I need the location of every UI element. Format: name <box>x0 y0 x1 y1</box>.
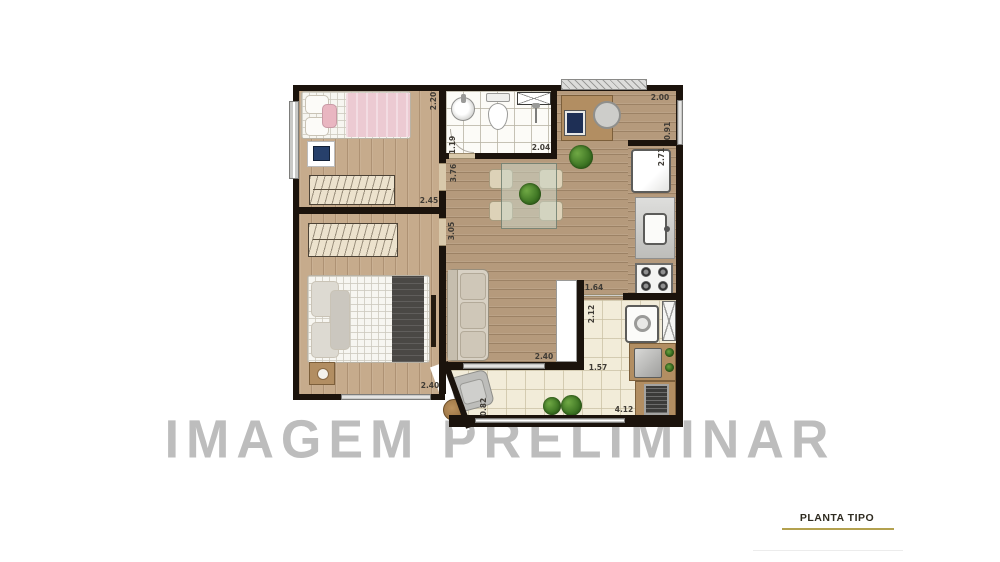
barbecue-grill <box>644 384 669 415</box>
bedroom2-door <box>439 218 446 246</box>
office-side-window <box>677 100 683 145</box>
burner <box>641 267 651 277</box>
grill-counter <box>635 381 676 417</box>
sofa-backrest <box>448 270 458 360</box>
bedroom1-bed <box>301 91 411 139</box>
bush <box>561 395 582 416</box>
office-window <box>561 79 647 90</box>
kitchen-counter <box>635 197 675 259</box>
shower-pipe <box>535 107 537 123</box>
bedroom2-bed <box>307 275 430 363</box>
service-cabinet <box>662 301 676 341</box>
page-canvas: IMAGEM PRELIMINAR <box>0 0 1000 562</box>
sofa-cushion <box>460 331 486 358</box>
shower-fixture <box>531 103 541 125</box>
pink-blanket <box>346 93 410 137</box>
dim-office-depth: 0.91 <box>664 120 672 142</box>
shower-head <box>532 103 540 108</box>
bathroom-sink <box>451 97 475 121</box>
table-plant <box>519 183 541 205</box>
washing-machine <box>625 305 659 343</box>
office-monitor <box>565 111 585 135</box>
bedroom2-tv-panel <box>431 295 436 347</box>
dim-bathroom-length: 2.04 <box>530 144 552 152</box>
terrace-window <box>475 418 625 423</box>
living-divider-panel <box>556 280 577 362</box>
wall-living-service-stub <box>577 280 584 370</box>
pink-pillow <box>322 104 337 128</box>
sofa-cushion <box>460 273 486 300</box>
footer-divider <box>753 550 903 551</box>
bedroom1-wardrobe <box>309 175 395 205</box>
faucet <box>461 94 466 103</box>
pillow <box>330 290 350 350</box>
dim-service-opening: 1.64 <box>583 284 605 292</box>
dim-kitchen-depth: 2.71 <box>658 146 666 168</box>
lamp <box>317 368 329 380</box>
sofa-cushion <box>460 302 486 329</box>
bedroom2-window <box>341 394 431 400</box>
dim-bedroom1-depth: 2.20 <box>430 90 438 112</box>
service-passage <box>584 294 623 297</box>
dim-office-width: 2.00 <box>649 94 671 102</box>
floor-plan: 2.20 1.19 2.04 3.76 2.45 3.05 2.40 2.00 … <box>293 85 683 427</box>
dim-service-width: 1.57 <box>587 364 609 372</box>
wardrobe-rod <box>313 239 394 240</box>
bush <box>543 397 561 415</box>
sofa <box>447 269 489 361</box>
bedroom2-nightstand <box>309 362 335 385</box>
living-sliding-door <box>463 363 545 369</box>
laundry-counter <box>629 343 676 381</box>
bedroom1-door <box>439 163 446 191</box>
faucet <box>664 226 670 232</box>
tv-screen <box>313 146 330 161</box>
bedroom1-window <box>289 101 299 179</box>
office-chair <box>593 101 621 129</box>
dim-bedroom2-depth: 3.05 <box>448 220 456 242</box>
bathroom-toilet <box>485 93 511 133</box>
laundry-tank <box>634 348 662 378</box>
wardrobe-rod <box>313 189 390 190</box>
dim-living-opening: 2.40 <box>533 353 555 361</box>
wall-between-bedrooms <box>299 207 439 214</box>
dim-hall-depth: 3.76 <box>450 162 458 184</box>
plant-pot <box>665 348 674 357</box>
burner <box>641 281 651 291</box>
caption-underline <box>782 528 894 530</box>
dim-terrace-length: 4.12 <box>613 406 635 414</box>
toilet-tank <box>486 93 510 102</box>
toilet-bowl <box>488 103 508 130</box>
dim-bedroom1-width: 2.45 <box>418 197 440 205</box>
dim-bedroom2-width: 2.40 <box>419 382 441 390</box>
stove <box>635 263 673 295</box>
bedroom2-wardrobe <box>308 223 398 257</box>
burner <box>658 281 668 291</box>
plant-pot <box>665 363 674 372</box>
wall-kitchen-service <box>623 293 676 300</box>
dim-bathroom-width: 1.19 <box>449 134 457 156</box>
office-plant <box>569 145 593 169</box>
washer-door <box>634 315 651 332</box>
dim-service-depth: 2.12 <box>588 303 596 325</box>
burner <box>658 267 668 277</box>
plan-caption: PLANTA TIPO <box>778 512 896 524</box>
bedroom1-tv <box>307 141 335 167</box>
bed-runner <box>392 276 424 362</box>
dim-balcony-depth: 0.82 <box>480 396 488 418</box>
